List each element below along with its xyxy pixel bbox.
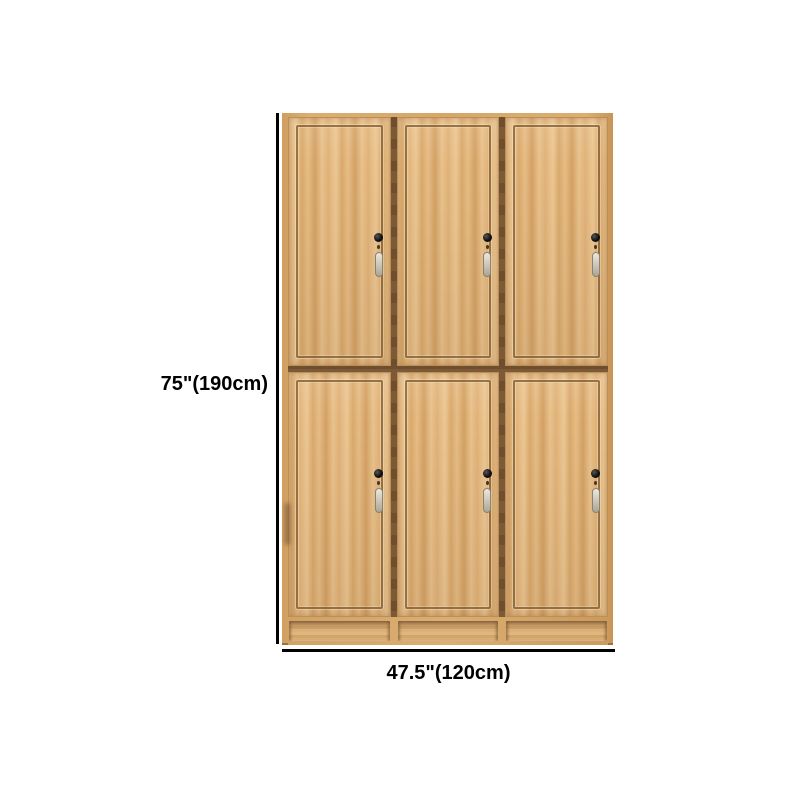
locker-door-top-center (397, 117, 500, 366)
door-panel-outline (513, 125, 600, 358)
locker-door-bottom-center (397, 372, 500, 617)
locker-cabinet (282, 113, 613, 645)
lock-keyhole-icon (374, 233, 383, 242)
lock-keyhole-icon (591, 469, 600, 478)
door-lock-assembly (374, 469, 384, 513)
door-lock-assembly (374, 233, 384, 277)
base-panel-inset-center (398, 621, 499, 641)
locker-door-top-right (505, 117, 608, 366)
locker-door-top-left (288, 117, 391, 366)
lock-screw-icon (486, 245, 489, 249)
lock-keyhole-icon (483, 233, 492, 242)
hanging-key-icon (375, 488, 383, 513)
lock-keyhole-icon (591, 233, 600, 242)
width-dimension-label: 47.5"(120cm) (282, 662, 615, 685)
hanging-key-icon (592, 252, 600, 277)
door-panel-outline (405, 125, 492, 358)
door-panel-outline (296, 125, 383, 358)
hanging-key-icon (483, 488, 491, 513)
height-dimension-line (276, 113, 279, 644)
product-dimension-image: 75"(190cm) (0, 0, 800, 800)
hanging-key-icon (375, 252, 383, 277)
base-panel-inset-right (506, 621, 607, 641)
base-panel-inset-left (289, 621, 390, 641)
lock-keyhole-icon (483, 469, 492, 478)
locker-door-bottom-left (288, 372, 391, 617)
lock-keyhole-icon (374, 469, 383, 478)
lock-screw-icon (377, 481, 380, 485)
lock-screw-icon (377, 245, 380, 249)
door-panel-outline (296, 380, 383, 609)
door-lock-assembly (591, 233, 601, 277)
lock-screw-icon (486, 481, 489, 485)
hanging-key-icon (592, 488, 600, 513)
width-dimension-line (282, 649, 615, 652)
hanging-key-icon (483, 252, 491, 277)
lock-screw-icon (594, 481, 597, 485)
base-kick-panel (288, 617, 608, 645)
locker-doors-grid (288, 117, 608, 617)
height-dimension-label: 75"(190cm) (140, 373, 268, 396)
locker-door-bottom-right (505, 372, 608, 617)
door-lock-assembly (482, 469, 492, 513)
lock-screw-icon (594, 245, 597, 249)
door-panel-outline (513, 380, 600, 609)
door-lock-assembly (482, 233, 492, 277)
door-lock-assembly (591, 469, 601, 513)
door-panel-outline (405, 380, 492, 609)
